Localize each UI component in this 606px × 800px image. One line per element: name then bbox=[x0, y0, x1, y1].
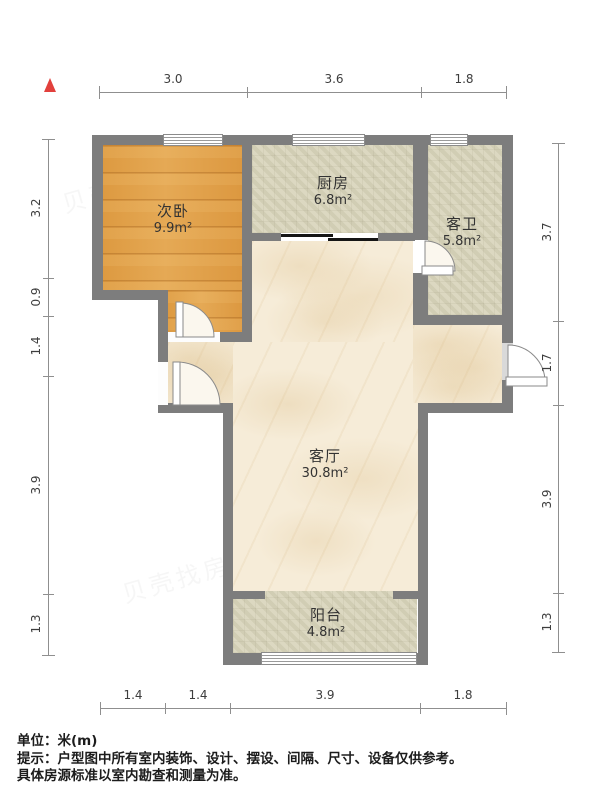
dim-tick bbox=[42, 139, 55, 140]
dim-tick bbox=[247, 87, 248, 98]
dim-tick bbox=[553, 321, 564, 322]
room-area: 5.8m² bbox=[443, 234, 482, 250]
dim-line-left bbox=[48, 139, 49, 656]
room-name: 次卧 bbox=[154, 202, 193, 221]
dim-label-right: 1.7 bbox=[540, 353, 554, 372]
dim-label-bottom: 1.4 bbox=[123, 688, 142, 702]
room-label-balcony: 阳台 4.8m² bbox=[307, 606, 346, 641]
room-area: 30.8m² bbox=[302, 466, 349, 482]
dim-tick bbox=[506, 86, 507, 99]
disclaimer-line-2: 具体房源标准以室内勘查和测量为准。 bbox=[17, 764, 247, 784]
unit-note: 单位：米(m) bbox=[17, 729, 97, 749]
dim-label-left: 3.2 bbox=[29, 198, 43, 217]
room-name: 阳台 bbox=[307, 606, 346, 625]
dim-label-bottom: 1.4 bbox=[188, 688, 207, 702]
dim-tick bbox=[421, 87, 422, 98]
dim-tick bbox=[506, 702, 507, 715]
dim-tick bbox=[99, 86, 100, 99]
dim-label-left: 1.4 bbox=[29, 336, 43, 355]
dim-tick bbox=[553, 593, 564, 594]
dim-label-right: 3.7 bbox=[540, 222, 554, 241]
dim-tick bbox=[552, 652, 565, 653]
bedroom-door bbox=[176, 302, 214, 337]
dim-tick bbox=[43, 278, 54, 279]
door-symbols-layer bbox=[0, 0, 606, 800]
dim-label-right: 3.9 bbox=[540, 489, 554, 508]
hall-door bbox=[173, 362, 220, 405]
room-label-bedroom: 次卧 9.9m² bbox=[154, 202, 193, 237]
dim-line-bottom bbox=[100, 708, 507, 709]
dim-label-left: 1.3 bbox=[29, 614, 43, 633]
dim-tick bbox=[43, 376, 54, 377]
dim-label-top: 1.8 bbox=[454, 72, 473, 86]
dim-label-left: 0.9 bbox=[29, 287, 43, 306]
dim-tick bbox=[230, 703, 231, 714]
room-area: 9.9m² bbox=[154, 221, 193, 237]
room-name: 厨房 bbox=[314, 174, 353, 193]
dim-tick bbox=[43, 316, 54, 317]
room-name: 客卫 bbox=[443, 215, 482, 234]
room-label-kitchen: 厨房 6.8m² bbox=[314, 174, 353, 209]
room-label-bathroom: 客卫 5.8m² bbox=[443, 215, 482, 250]
dim-label-bottom: 1.8 bbox=[453, 688, 472, 702]
room-area: 6.8m² bbox=[314, 193, 353, 209]
floor-plan-page: 贝壳找房 贝壳找房 贝壳找房 bbox=[0, 0, 606, 800]
dim-label-top: 3.6 bbox=[324, 72, 343, 86]
dim-line-right bbox=[558, 143, 559, 653]
dim-label-top: 3.0 bbox=[163, 72, 182, 86]
dim-tick bbox=[165, 703, 166, 714]
dim-label-right: 1.3 bbox=[540, 612, 554, 631]
room-label-living-room: 客厅 30.8m² bbox=[302, 447, 349, 482]
dim-label-left: 3.9 bbox=[29, 475, 43, 494]
room-name: 客厅 bbox=[302, 447, 349, 466]
dim-tick bbox=[552, 143, 565, 144]
dim-label-bottom: 3.9 bbox=[315, 688, 334, 702]
dim-tick bbox=[100, 702, 101, 715]
dim-tick bbox=[42, 655, 55, 656]
dim-tick bbox=[420, 703, 421, 714]
dim-tick bbox=[43, 594, 54, 595]
dim-tick bbox=[553, 405, 564, 406]
room-area: 4.8m² bbox=[307, 625, 346, 641]
dim-line-top bbox=[99, 92, 507, 93]
